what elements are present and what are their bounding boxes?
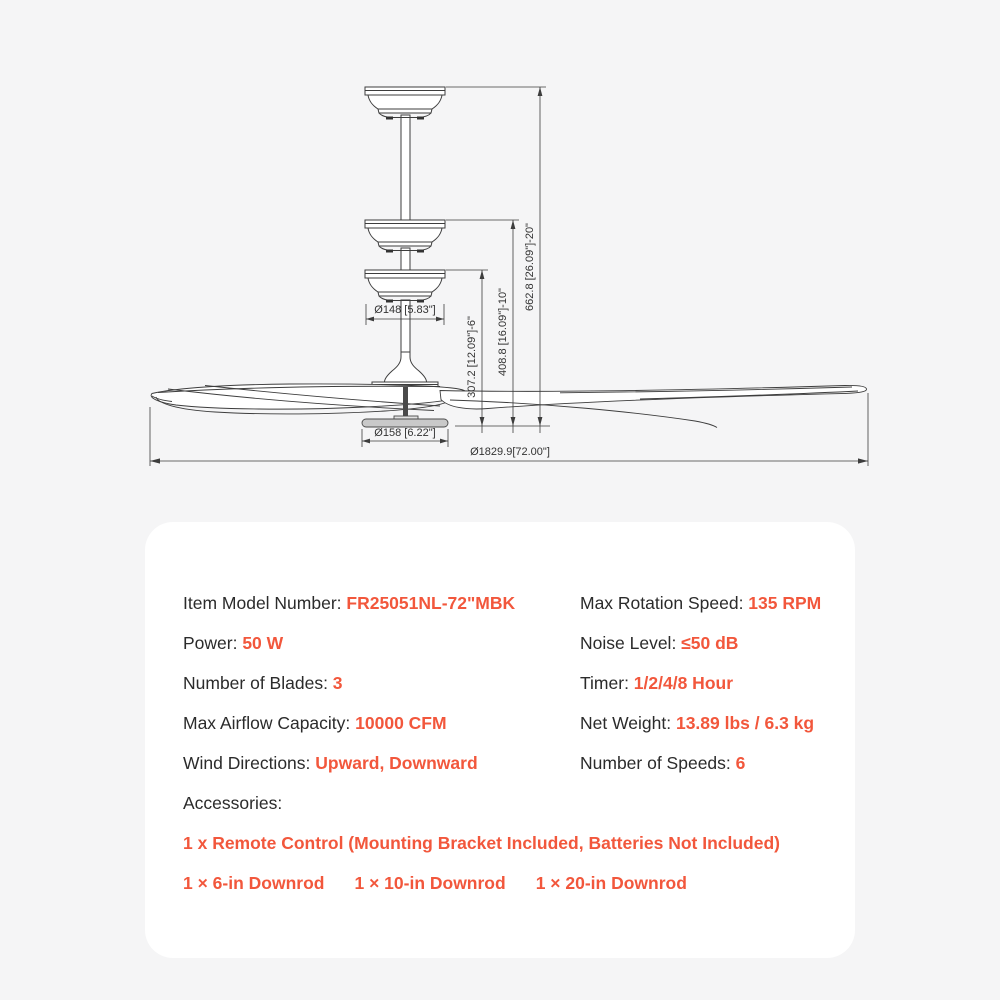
spec-panel: Item Model Number: FR25051NL-72"MBK Max …: [145, 522, 855, 958]
spec-label: Wind Directions:: [183, 753, 315, 773]
spec-net-weight: Net Weight: 13.89 lbs / 6.3 kg: [580, 713, 814, 734]
spec-value: ≤50 dB: [681, 633, 738, 653]
spec-value: 1/2/4/8 Hour: [634, 673, 733, 693]
dim-height-20in-label: 662.8 [26.09"]-20": [524, 223, 536, 311]
spec-max-airflow: Max Airflow Capacity: 10000 CFM: [183, 713, 447, 734]
spec-row-accessories-downrods: 1 × 6-in Downrod 1 × 10-in Downrod 1 × 2…: [183, 873, 687, 894]
accessories-label: Accessories:: [183, 793, 282, 813]
spec-item-model-number: Item Model Number: FR25051NL-72"MBK: [183, 593, 515, 614]
accessory-downrod-20in: 1 × 20-in Downrod: [536, 873, 687, 894]
spec-timer: Timer: 1/2/4/8 Hour: [580, 673, 733, 694]
spec-label: Noise Level:: [580, 633, 681, 653]
spec-value: 13.89 lbs / 6.3 kg: [676, 713, 814, 733]
spec-value: 3: [333, 673, 343, 693]
spec-power: Power: 50 W: [183, 633, 283, 654]
spec-wind-directions: Wind Directions: Upward, Downward: [183, 753, 478, 774]
spec-label: Power:: [183, 633, 242, 653]
spec-label: Net Weight:: [580, 713, 676, 733]
spec-label: Max Airflow Capacity:: [183, 713, 355, 733]
accessory-downrod-10in: 1 × 10-in Downrod: [354, 873, 505, 894]
spec-label: Item Model Number:: [183, 593, 346, 613]
spec-label: Max Rotation Speed:: [580, 593, 748, 613]
accessory-downrod-6in: 1 × 6-in Downrod: [183, 873, 324, 894]
spec-value: 50 W: [242, 633, 283, 653]
motor-mount: [372, 352, 438, 387]
spec-label: Timer:: [580, 673, 634, 693]
spec-number-of-blades: Number of Blades: 3: [183, 673, 343, 694]
spec-value: 135 RPM: [748, 593, 821, 613]
spec-noise-level: Noise Level: ≤50 dB: [580, 633, 738, 654]
dim-overall-diameter-label: Ø1829.9[72.00"]: [470, 446, 550, 458]
spec-row-4: Max Airflow Capacity: 10000 CFM Net Weig…: [183, 713, 827, 739]
dim-lightkit-diameter-label: Ø158 [6.22"]: [374, 427, 435, 439]
spec-row-1: Item Model Number: FR25051NL-72"MBK Max …: [183, 593, 827, 619]
fan-blade-right: [440, 385, 867, 427]
dim-canopy-diameter-label: Ø148 [5.83"]: [374, 304, 435, 316]
fan-dimension-diagram: Ø148 [5.83"] Ø158 [6.22"] Ø1829.9[72.00"…: [0, 0, 1000, 500]
spec-number-of-speeds: Number of Speeds: 6: [580, 753, 745, 774]
spec-label: Number of Blades:: [183, 673, 333, 693]
spec-value: FR25051NL-72"MBK: [346, 593, 515, 613]
spec-value: Upward, Downward: [315, 753, 477, 773]
spec-label: Number of Speeds:: [580, 753, 736, 773]
spec-value: 6: [736, 753, 746, 773]
spec-row-5: Wind Directions: Upward, Downward Number…: [183, 753, 827, 779]
dim-lightkit-diameter: Ø158 [6.22"]: [362, 427, 448, 447]
dim-height-10in-label: 408.8 [16.09"]-10": [497, 288, 509, 376]
spec-row-3: Number of Blades: 3 Timer: 1/2/4/8 Hour: [183, 673, 827, 699]
canopy-6in-position: [365, 270, 445, 303]
dim-height-6in-label: 307.2 [12.09"]-6": [466, 316, 478, 398]
spec-row-accessories-remote: 1 x Remote Control (Mounting Bracket Inc…: [183, 833, 827, 859]
spec-value: 10000 CFM: [355, 713, 446, 733]
fan-blades-left: [151, 384, 467, 414]
dim-height-20in: 662.8 [26.09"]-20": [446, 87, 546, 426]
accessory-remote-control: 1 x Remote Control (Mounting Bracket Inc…: [183, 833, 780, 853]
spec-row-2: Power: 50 W Noise Level: ≤50 dB: [183, 633, 827, 659]
spec-row-accessories-heading: Accessories:: [183, 793, 827, 819]
spec-max-rotation-speed: Max Rotation Speed: 135 RPM: [580, 593, 821, 614]
bottom-reference-line: [455, 426, 550, 433]
